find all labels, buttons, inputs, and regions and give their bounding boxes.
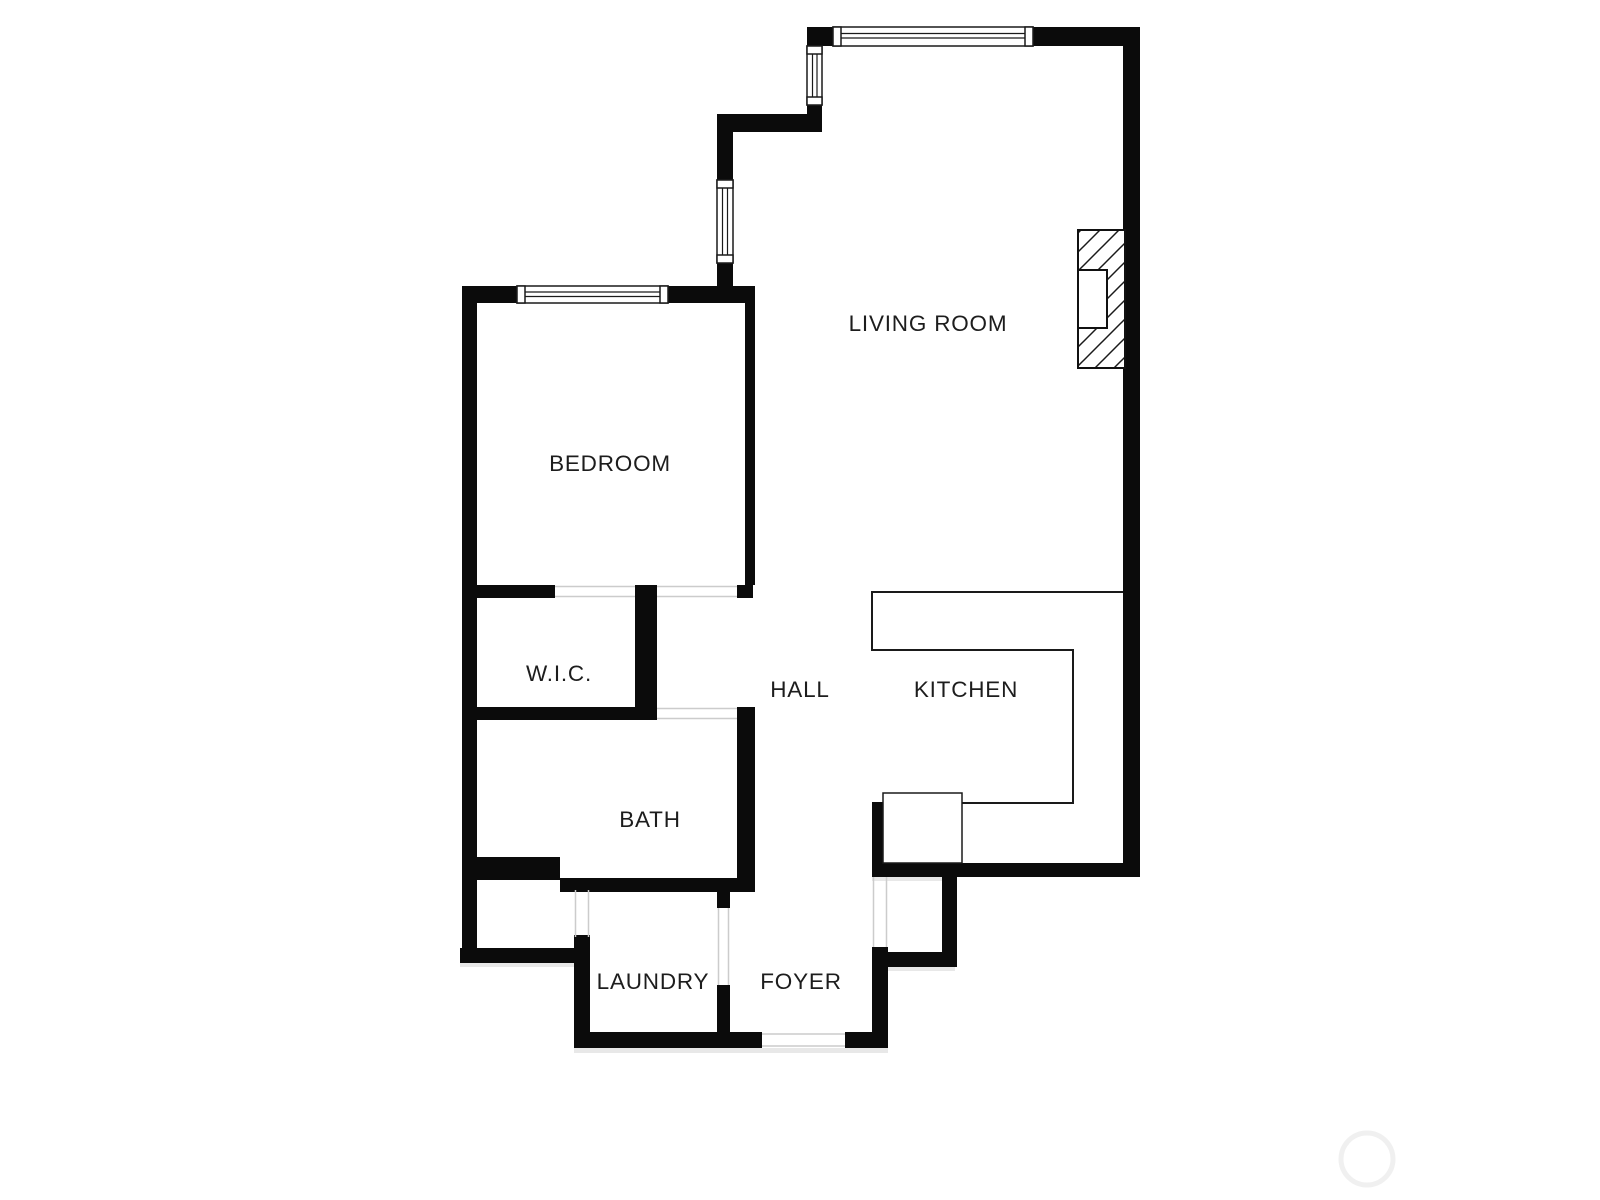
wall [717,892,730,908]
windows [517,27,1033,303]
wall [574,935,590,1048]
wall [872,947,888,1048]
window-mid-wall [717,180,733,263]
door-opening-wic [555,587,635,597]
wall [737,707,755,892]
fireplace-symbol [1078,230,1125,368]
window-living-room-west [807,46,822,105]
wall-shadow [872,877,942,881]
room-label-bath: BATH [619,807,681,832]
walls [460,27,1140,1048]
wall [717,114,733,180]
room-label-hall: HALL [770,677,829,702]
wall [560,878,755,892]
wall [574,1032,762,1048]
wall [668,286,755,303]
wall [635,585,657,720]
door-opening-entry [762,1034,845,1046]
window-living-room-top [833,27,1033,46]
wall [462,707,657,720]
door-opening-laundry-nook [576,890,589,937]
room-label-foyer: FOYER [760,969,842,994]
wall-shadow [574,1048,888,1053]
firebox [1078,270,1107,328]
wall [807,27,835,46]
kitchen-appliance [883,793,962,863]
door-opening-foyer-closet [874,877,887,947]
wall [942,863,957,967]
wall-shadow [460,963,590,967]
floor-plan: LIVING ROOM BEDROOM W.I.C. HALL KITCHEN … [0,0,1600,1200]
kitchen-counter [872,592,1123,863]
door-opening-bedroom [657,587,737,597]
wall [460,948,590,963]
room-label-kitchen: KITCHEN [914,677,1018,702]
wall [737,585,753,598]
room-label-bedroom: BEDROOM [549,451,671,476]
floor-plan-page: LIVING ROOM BEDROOM W.I.C. HALL KITCHEN … [0,0,1600,1200]
watermark-circle [1341,1133,1393,1185]
wall [872,863,1140,877]
room-label-living-room: LIVING ROOM [849,311,1008,336]
room-label-laundry: LAUNDRY [597,969,710,994]
window-bedroom [517,286,668,303]
wall-shadow [888,967,955,971]
wall [1123,27,1140,877]
wall [745,293,755,585]
door-opening-bath [657,709,737,719]
wall [462,585,555,598]
wall [462,857,560,880]
door-opening-laundry [719,908,729,985]
room-label-wic: W.I.C. [526,661,592,686]
